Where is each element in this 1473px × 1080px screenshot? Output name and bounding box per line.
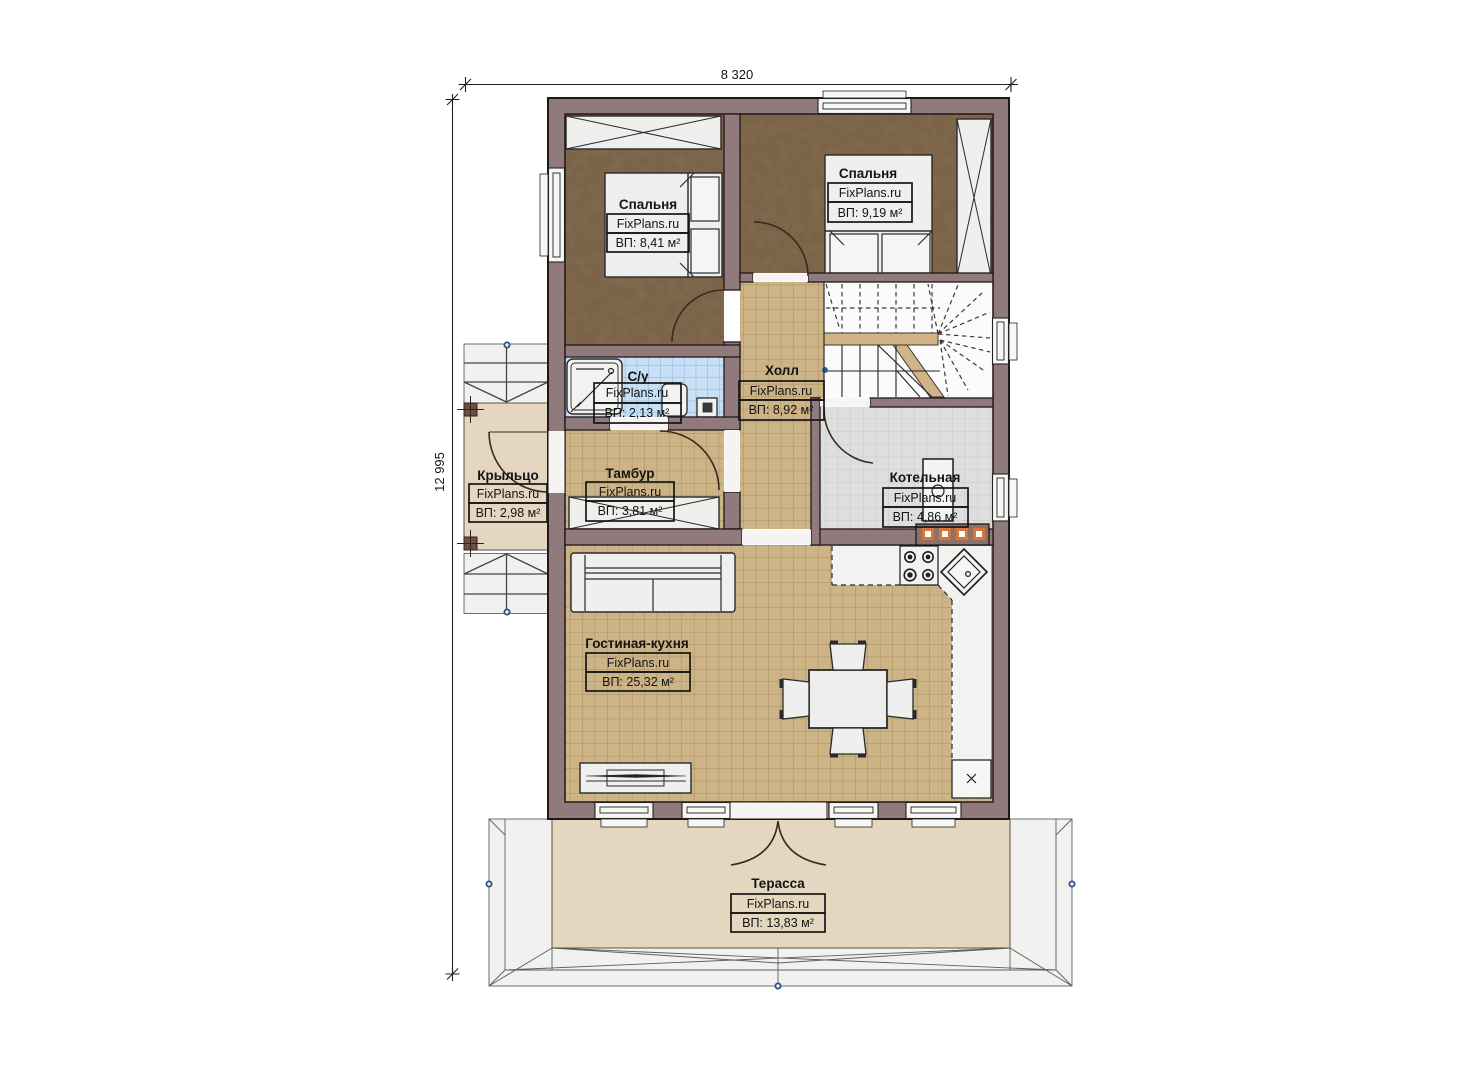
- svg-text:FixPlans.ru: FixPlans.ru: [839, 186, 902, 200]
- svg-text:8 320: 8 320: [721, 67, 754, 82]
- svg-text:FixPlans.ru: FixPlans.ru: [750, 384, 813, 398]
- svg-text:Спальня: Спальня: [619, 197, 677, 212]
- svg-text:FixPlans.ru: FixPlans.ru: [477, 487, 540, 501]
- svg-text:ВП: 2,13 м²: ВП: 2,13 м²: [605, 406, 670, 420]
- svg-text:ВП: 3,81 м²: ВП: 3,81 м²: [598, 504, 663, 518]
- svg-text:ВП: 4,86 м²: ВП: 4,86 м²: [893, 510, 958, 524]
- svg-text:ВП: 9,19 м²: ВП: 9,19 м²: [838, 206, 903, 220]
- svg-text:С/у: С/у: [627, 369, 649, 384]
- svg-text:FixPlans.ru: FixPlans.ru: [617, 217, 680, 231]
- svg-text:FixPlans.ru: FixPlans.ru: [607, 656, 670, 670]
- svg-text:Котельная: Котельная: [890, 470, 961, 485]
- svg-text:ВП: 8,41 м²: ВП: 8,41 м²: [616, 236, 681, 250]
- svg-text:Холл: Холл: [765, 363, 799, 378]
- svg-text:ВП: 2,98 м²: ВП: 2,98 м²: [476, 506, 541, 520]
- svg-text:12 995: 12 995: [432, 452, 447, 492]
- svg-text:FixPlans.ru: FixPlans.ru: [599, 485, 662, 499]
- svg-text:Гостиная-кухня: Гостиная-кухня: [585, 636, 688, 651]
- svg-text:Терасса: Терасса: [751, 876, 805, 891]
- svg-text:ВП: 8,92 м²: ВП: 8,92 м²: [749, 403, 814, 417]
- svg-text:FixPlans.ru: FixPlans.ru: [894, 491, 957, 505]
- svg-text:Тамбур: Тамбур: [606, 466, 655, 481]
- svg-text:FixPlans.ru: FixPlans.ru: [747, 897, 810, 911]
- svg-text:FixPlans.ru: FixPlans.ru: [606, 386, 669, 400]
- svg-text:Крыльцо: Крыльцо: [477, 468, 538, 483]
- svg-text:ВП: 13,83 м²: ВП: 13,83 м²: [742, 916, 814, 930]
- svg-text:ВП: 25,32 м²: ВП: 25,32 м²: [602, 675, 674, 689]
- svg-text:Спальня: Спальня: [839, 166, 897, 181]
